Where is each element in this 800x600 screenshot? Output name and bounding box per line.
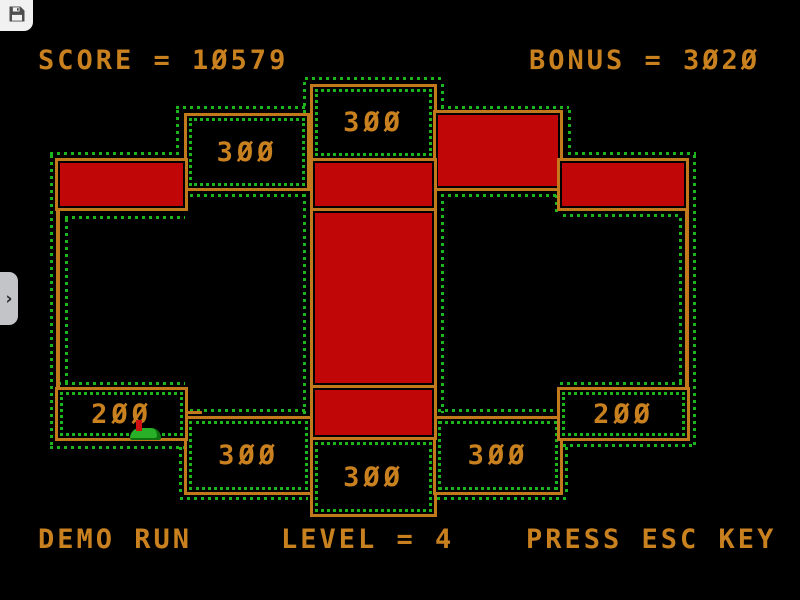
- track-dots: [305, 77, 445, 80]
- box-value: 3ØØ: [343, 464, 404, 491]
- floppy-disk-icon: [7, 4, 27, 28]
- score-display: SCORE = 1Ø579: [38, 47, 288, 74]
- track-dots: [441, 194, 556, 197]
- red-block-left: [55, 158, 188, 211]
- box-value: 3ØØ: [217, 139, 278, 166]
- chamber-wall-right: [685, 208, 689, 392]
- red-block-center-bottom: [310, 385, 437, 440]
- box-value: 3ØØ: [343, 109, 404, 136]
- track-dots: [50, 446, 188, 449]
- track-dots: [563, 444, 693, 447]
- box-value: 3ØØ: [468, 442, 529, 469]
- score-box-top-center: 3ØØ: [310, 84, 437, 161]
- level-display: LEVEL = 4: [281, 526, 454, 553]
- game-screen: 3ØØ 3ØØ 3ØØ 3ØØ 3ØØ 2ØØ 2ØØ SCORE = 1Ø57…: [0, 0, 800, 600]
- track-dots: [50, 152, 183, 155]
- score-box-left-200: 2ØØ: [55, 387, 188, 441]
- save-button[interactable]: [0, 0, 33, 31]
- score-box-right-200: 2ØØ: [557, 387, 690, 441]
- chevron-right-icon: ›: [5, 289, 12, 309]
- sidebar-toggle[interactable]: ›: [0, 272, 18, 325]
- track-dots: [693, 155, 696, 447]
- creature-marker: [136, 420, 142, 431]
- track-dots: [176, 106, 308, 109]
- track-dots: [65, 219, 68, 383]
- chamber-wall-left: [56, 208, 60, 392]
- track-dots: [58, 382, 185, 385]
- creature-body: [130, 428, 161, 440]
- track-dots: [441, 106, 569, 109]
- track-dots: [190, 409, 308, 412]
- track-dots: [568, 110, 571, 158]
- demo-run-label: DEMO RUN: [38, 526, 192, 553]
- score-box-bottom-right-300: 3ØØ: [433, 416, 563, 495]
- track-dots: [65, 216, 185, 219]
- door-stub: [188, 411, 202, 414]
- track-dots: [441, 194, 444, 413]
- track-dots: [565, 447, 568, 495]
- box-value: 3ØØ: [218, 442, 279, 469]
- esc-key-hint: PRESS ESC KEY: [526, 526, 776, 553]
- score-box-bottom-center: 3ØØ: [310, 437, 437, 517]
- score-box-bottom-left-300: 3ØØ: [184, 416, 313, 495]
- track-dots: [438, 409, 556, 412]
- track-dots: [50, 155, 53, 447]
- red-block-top-right: [433, 110, 563, 191]
- track-dots: [180, 497, 308, 500]
- player-creature-sprite: [129, 420, 163, 440]
- track-dots: [563, 214, 681, 217]
- track-dots: [679, 218, 682, 384]
- red-block-center-top: [310, 158, 437, 211]
- box-value: 2ØØ: [593, 401, 654, 428]
- track-dots: [190, 194, 306, 197]
- red-block-right: [557, 158, 689, 211]
- bonus-display: BONUS = 3Ø2Ø: [529, 47, 760, 74]
- red-block-center-tall: [310, 208, 437, 388]
- score-box-top-left: 3ØØ: [184, 113, 310, 191]
- track-dots: [560, 382, 686, 385]
- track-dots: [568, 152, 696, 155]
- track-dots: [179, 447, 182, 495]
- track-dots: [437, 497, 567, 500]
